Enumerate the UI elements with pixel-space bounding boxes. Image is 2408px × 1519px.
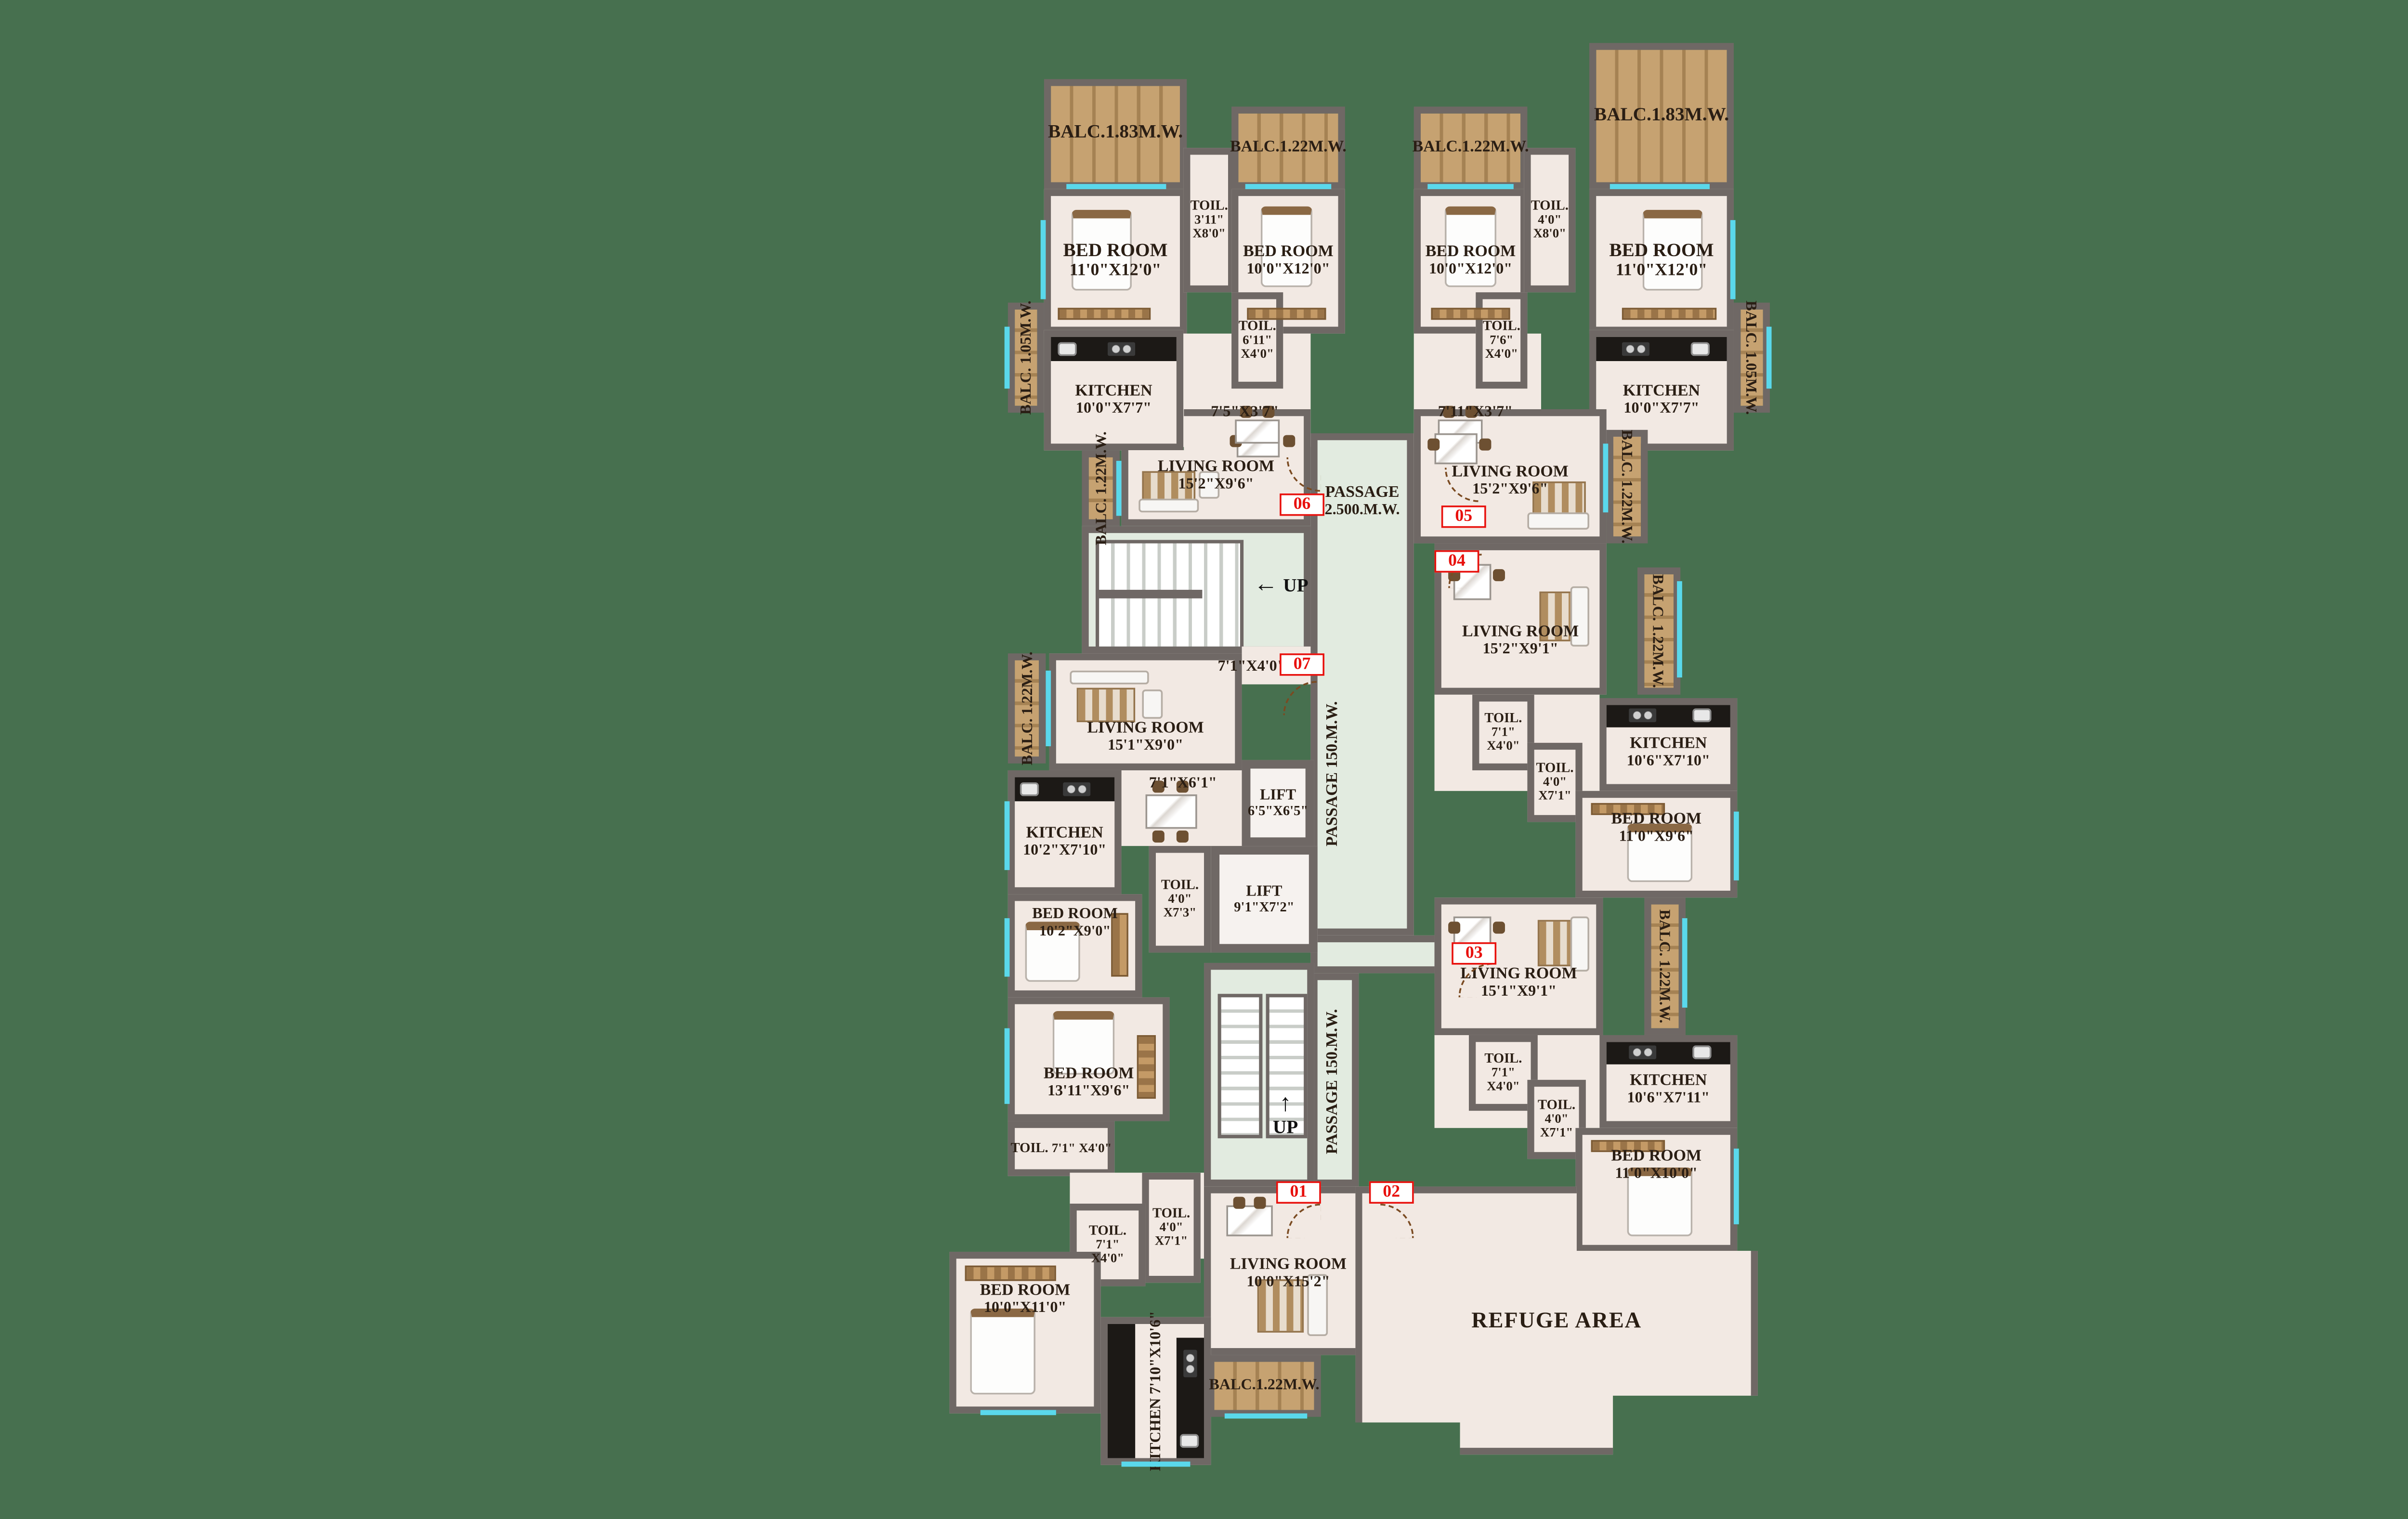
window bbox=[1005, 327, 1010, 389]
unit-marker-05: 05 bbox=[1441, 506, 1486, 528]
dining-dims: 7'11"X3'7" bbox=[1438, 402, 1513, 420]
dining-dims: 7'1"X6'1" bbox=[1149, 774, 1217, 791]
left-arrow-icon: ← bbox=[1254, 574, 1278, 598]
window bbox=[1427, 184, 1514, 189]
unit-marker-07: 07 bbox=[1280, 653, 1324, 675]
balcony: BALC. 1.05M.W. bbox=[1734, 303, 1770, 413]
up-arrow-icon: ↑ bbox=[1280, 1093, 1292, 1117]
toilet: TOIL.4'0"X7'3" bbox=[1149, 846, 1211, 952]
balcony: BALC.1.22M.W. bbox=[1231, 106, 1345, 189]
balcony: BALC. 1.22M.W. bbox=[1607, 430, 1648, 544]
stairs-up-label: ↑ UP bbox=[1273, 1093, 1298, 1138]
window bbox=[1603, 443, 1609, 512]
unit-marker-03: 03 bbox=[1452, 942, 1496, 964]
kitchen: KITCHEN10'6"X7'10" bbox=[1599, 698, 1737, 791]
window bbox=[1005, 801, 1010, 870]
toilet: TOIL.6'11"X4'0" bbox=[1231, 292, 1283, 389]
window bbox=[1677, 581, 1682, 677]
lift: LIFT9'1"X7'2" bbox=[1211, 846, 1317, 952]
toilet: TOIL.7'1"X4'0" bbox=[1469, 1035, 1538, 1111]
window bbox=[1245, 184, 1332, 189]
kitchen: KITCHEN10'0"X7'7" bbox=[1044, 330, 1183, 451]
passage-label: PASSAGE 150.M.W. bbox=[1314, 671, 1352, 877]
window bbox=[1005, 918, 1010, 976]
toilet: TOIL.7'1"X4'0" bbox=[1472, 695, 1534, 770]
passage-connector bbox=[1310, 935, 1441, 974]
living-room: LIVING ROOM15'1"X9'0" bbox=[1049, 653, 1242, 770]
lift: LIFT6'5"X6'5" bbox=[1242, 760, 1314, 846]
toilet: TOIL.4'0"X7'1" bbox=[1527, 1080, 1585, 1159]
stair-hall: ← UP bbox=[1082, 526, 1310, 653]
window bbox=[1734, 812, 1739, 881]
unit-marker-04: 04 bbox=[1435, 550, 1479, 572]
window bbox=[1005, 1028, 1010, 1104]
bedroom: BED ROOM13'11"X9'6" bbox=[1008, 997, 1170, 1121]
door-dims: 7'1"X4'0" bbox=[1218, 657, 1286, 674]
window bbox=[1767, 327, 1772, 389]
bedroom: BED ROOM11'0"X12'0" bbox=[1589, 189, 1734, 334]
door-arc bbox=[1283, 681, 1317, 715]
stairs-up-label: ← UP bbox=[1254, 574, 1309, 598]
toilet: TOIL.4'0"X7'1" bbox=[1527, 743, 1582, 822]
window bbox=[1122, 1462, 1191, 1467]
window bbox=[1682, 918, 1688, 1008]
toilet: TOIL.3'11"X8'0" bbox=[1183, 148, 1235, 292]
bedroom: BED ROOM11'0"X9'6" bbox=[1575, 791, 1737, 897]
floor-plan: BALC.1.83M.W. BED ROOM11'0"X12'0" TOIL.3… bbox=[0, 0, 2408, 1519]
balcony: BALC.1.83M.W. bbox=[1044, 79, 1187, 189]
bedroom: BED ROOM10'2"X9'0" bbox=[1008, 894, 1142, 997]
kitchen: KITCHEN 7'10"X10'6" bbox=[1101, 1317, 1211, 1465]
balcony: BALC. 1.05M.W. bbox=[1008, 303, 1044, 413]
window bbox=[981, 1410, 1056, 1415]
window bbox=[1046, 671, 1051, 746]
toilet: TOIL.4'0"X8'0" bbox=[1524, 148, 1575, 292]
balcony: BALC.1.83M.W. bbox=[1589, 43, 1734, 189]
dining-table bbox=[1146, 794, 1197, 829]
bedroom: BED ROOM11'0"X10'0" bbox=[1575, 1128, 1737, 1252]
balcony: BALC.1.22M.W. bbox=[1414, 106, 1528, 189]
dining-hall: 7'1"X6'1" bbox=[1122, 770, 1242, 846]
balcony: BALC. 1.22M.W. bbox=[1008, 653, 1046, 764]
living-room: LIVING ROOM15'1"X9'1" bbox=[1435, 897, 1603, 1035]
kitchen: KITCHEN10'2"X7'10" bbox=[1008, 770, 1122, 894]
stair-hall: ↑ UP bbox=[1204, 963, 1314, 1186]
window bbox=[1610, 184, 1710, 189]
unit-marker-01: 01 bbox=[1276, 1181, 1321, 1204]
window bbox=[1066, 184, 1166, 189]
balcony: BALC. 1.22M.W. bbox=[1644, 897, 1686, 1035]
toilet: TOIL.7'6"X4'0" bbox=[1476, 292, 1527, 389]
passage-label: PASSAGE 150.M.W. bbox=[1314, 987, 1352, 1176]
unit-marker-06: 06 bbox=[1280, 493, 1324, 516]
dining-table bbox=[1235, 419, 1280, 443]
living-room: LIVING ROOM10'0"X15'2" bbox=[1204, 1186, 1373, 1355]
bedroom: BED ROOM11'0"X12'0" bbox=[1044, 189, 1187, 334]
bedroom: BED ROOM10'0"X11'0" bbox=[949, 1252, 1100, 1414]
window bbox=[1116, 461, 1122, 516]
window bbox=[1730, 220, 1736, 299]
window bbox=[1225, 1414, 1307, 1419]
balcony: BALC. 1.22M.W. bbox=[1637, 568, 1680, 695]
unit-marker-02: 02 bbox=[1369, 1181, 1414, 1204]
kitchen: KITCHEN10'6"X7'11" bbox=[1599, 1035, 1737, 1128]
dining-dims: 7'5"X3'7" bbox=[1211, 402, 1279, 420]
kitchen: KITCHEN10'0"X7'7" bbox=[1589, 330, 1734, 451]
stairs bbox=[1218, 994, 1263, 1138]
window bbox=[1041, 220, 1046, 299]
toilet: TOIL.7'1"X4'0" bbox=[1008, 1121, 1114, 1176]
balcony: BALC. 1.22M.W. bbox=[1082, 451, 1120, 526]
toilet: TOIL.4'0"X7'1" bbox=[1142, 1173, 1200, 1283]
window bbox=[1734, 1149, 1739, 1224]
balcony: BALC.1.22M.W. bbox=[1207, 1355, 1321, 1417]
